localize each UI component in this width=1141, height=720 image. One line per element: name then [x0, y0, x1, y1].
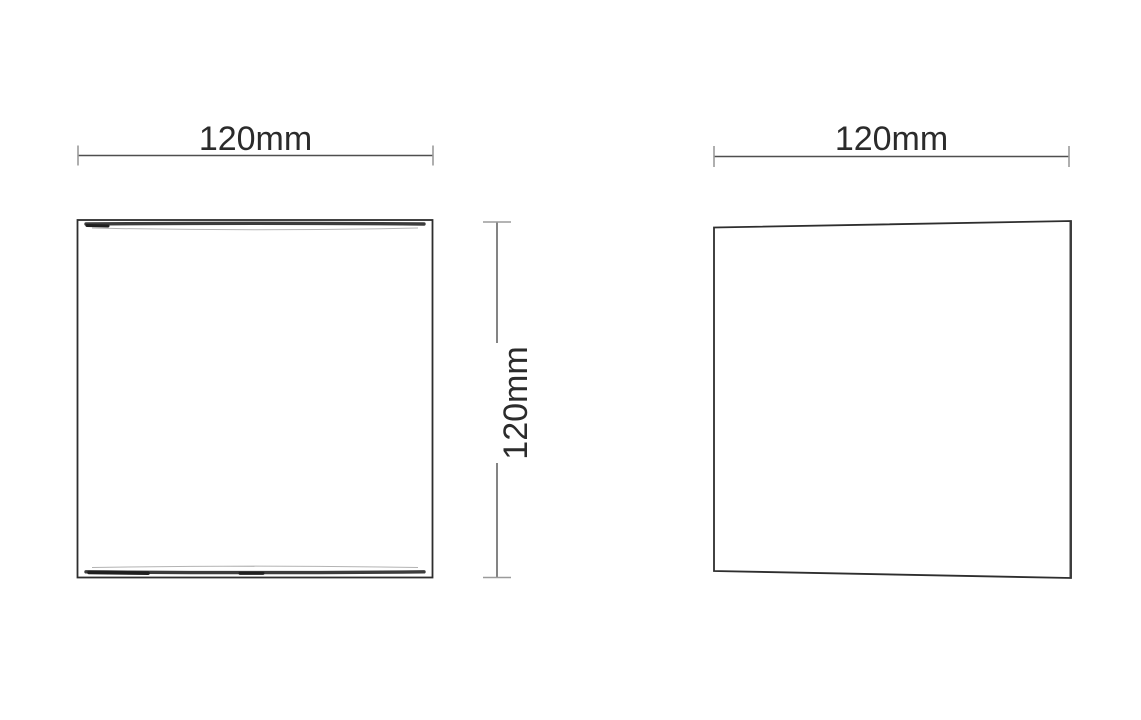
front-width-dimension-label: 120mm [199, 120, 312, 158]
side-depth-dimension-label: 120mm [835, 120, 948, 158]
side-view [714, 221, 1071, 578]
front-height-dimension-label: 120mm [497, 346, 535, 459]
side-view-outline [714, 221, 1071, 578]
technical-drawing: 120mm 120mm 120mm [0, 0, 1141, 720]
front-view-bottom-band-left-detail [89, 573, 148, 574]
front-view-outline [78, 220, 433, 578]
side-depth-dimension: 120mm [714, 120, 1069, 167]
front-view-top-lens-band [86, 223, 424, 224]
front-view [78, 220, 433, 578]
drawing-sheet: 120mm 120mm 120mm [0, 0, 1141, 720]
front-view-top-band-left-detail [87, 226, 108, 227]
front-height-dimension: 120mm [483, 222, 535, 578]
front-width-dimension: 120mm [78, 120, 433, 166]
